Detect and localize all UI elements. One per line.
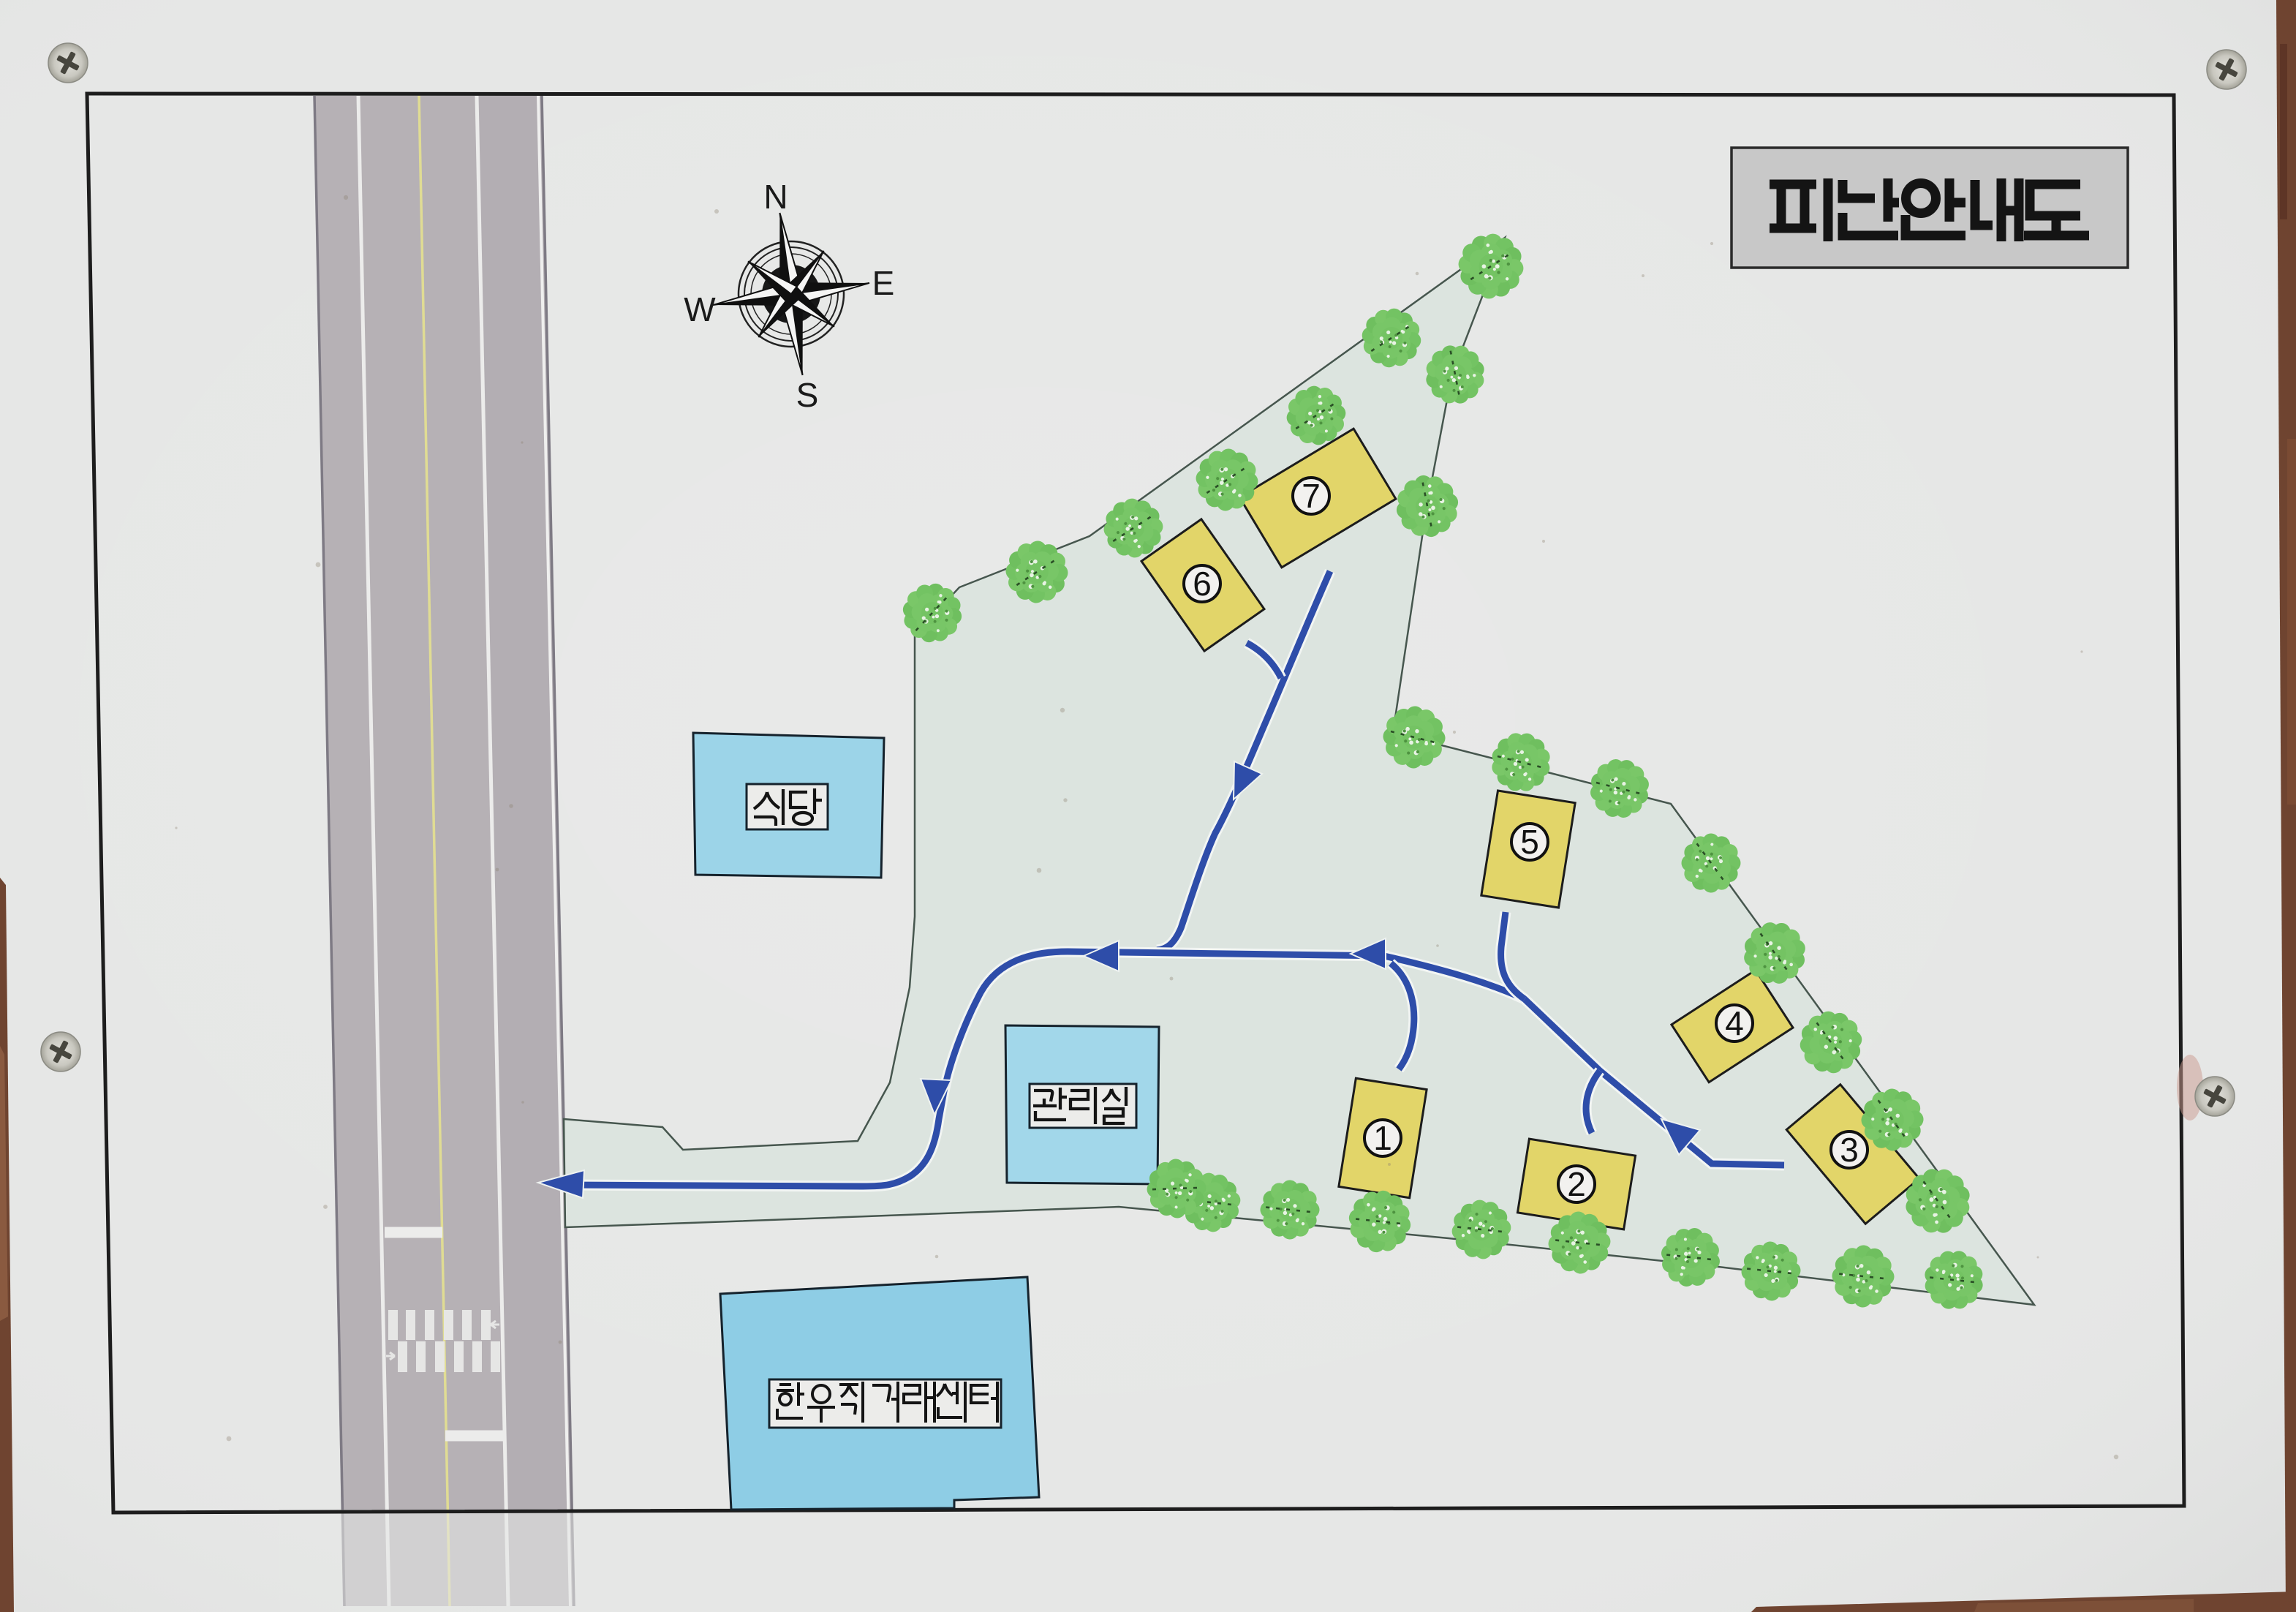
svg-text:E: E <box>872 264 895 302</box>
svg-text:5: 5 <box>1520 823 1539 861</box>
svg-text:N: N <box>763 178 788 216</box>
svg-text:W: W <box>684 290 716 328</box>
svg-text:S: S <box>796 376 819 414</box>
svg-text:4: 4 <box>1725 1004 1744 1042</box>
svg-text:7: 7 <box>1302 477 1321 515</box>
svg-text:3: 3 <box>1840 1131 1859 1169</box>
svg-text:1: 1 <box>1373 1119 1392 1157</box>
svg-text:6: 6 <box>1193 565 1212 603</box>
svg-text:2: 2 <box>1567 1165 1586 1203</box>
